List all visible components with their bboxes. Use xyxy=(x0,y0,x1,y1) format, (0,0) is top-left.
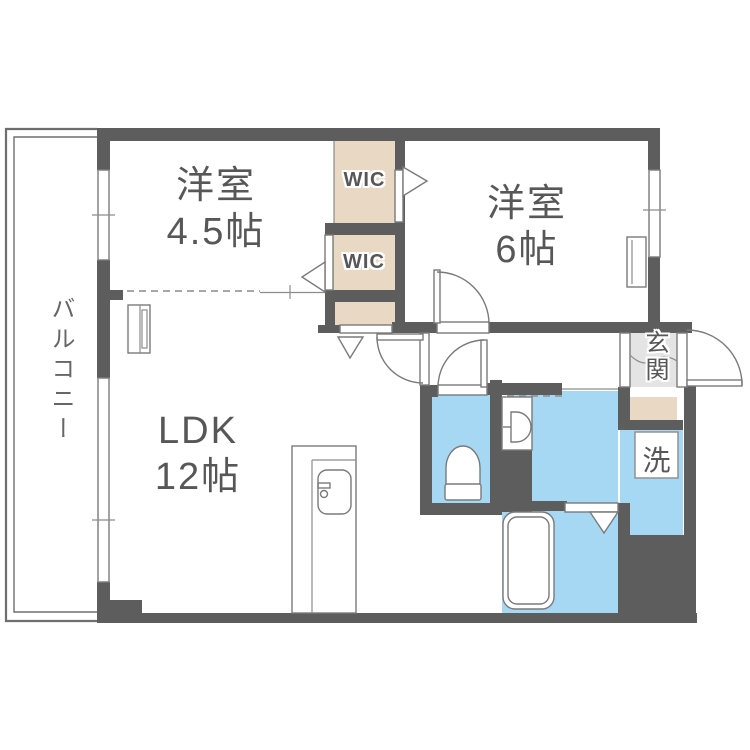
ldk-door-arc xyxy=(377,337,423,383)
room-label-western1: 洋室 4.5帖 xyxy=(116,163,316,255)
toilet-door-opening xyxy=(438,385,487,395)
kitchen-counter-icon xyxy=(292,446,356,613)
bathtub-icon xyxy=(503,512,554,609)
ldk-door-leaf xyxy=(377,334,423,340)
air-conditioner-icon xyxy=(627,237,646,287)
room-size: 4.5帖 xyxy=(116,209,316,255)
bedroom2-door-leaf xyxy=(434,270,440,323)
toilet-door-arc xyxy=(438,340,484,387)
entrance-jamb-left xyxy=(620,333,630,387)
room-size: 12帖 xyxy=(98,454,298,500)
room-size: 6帖 xyxy=(427,227,627,273)
window-east-bedroom xyxy=(649,170,660,257)
room-label-wic1: WIC xyxy=(334,169,395,192)
room-label-ldk: LDK 12帖 xyxy=(98,408,298,500)
closet-floor xyxy=(335,302,395,325)
wic1-door-opening xyxy=(395,170,403,222)
room-name: 洋室 xyxy=(116,163,316,209)
bath-door-opening xyxy=(565,503,618,512)
ldk-door-opening xyxy=(420,333,429,385)
wic2-door-opening xyxy=(325,235,333,290)
room-label-wic2: WIC xyxy=(333,251,395,274)
entrance-jamb-right xyxy=(677,333,687,387)
room-name: 洋室 xyxy=(427,181,627,227)
room-name: LDK xyxy=(98,408,298,454)
entrance-door-arc xyxy=(687,330,742,385)
toilet-icon xyxy=(445,446,481,500)
room-label-entrance: 玄関 xyxy=(637,330,672,384)
toilet-door-leaf xyxy=(481,340,487,387)
wic2-folding-door-arrow xyxy=(302,262,325,292)
wic1-folding-door-arrow xyxy=(403,167,427,196)
room-label-western2: 洋室 6帖 xyxy=(427,181,627,273)
bedroom2-door-opening xyxy=(437,322,489,333)
entrance-door-leaf xyxy=(687,380,742,386)
room-label-laundry: 洗 xyxy=(635,439,678,479)
washroom-floor-ext xyxy=(630,503,683,535)
washbasin-icon xyxy=(502,397,532,450)
shoe-cabinet-floor xyxy=(628,397,677,420)
bedroom2-door-arc xyxy=(437,272,489,324)
tv-board-icon xyxy=(128,305,150,353)
closet-door-opening xyxy=(340,325,392,333)
closet-folding-door-arrow xyxy=(338,337,363,358)
room-label-balcony: バルコニー xyxy=(43,296,78,446)
floor-plan: 洋室 4.5帖 洋室 6帖 LDK 12帖 WIC WIC 玄関 洗 バルコニー xyxy=(0,0,750,750)
